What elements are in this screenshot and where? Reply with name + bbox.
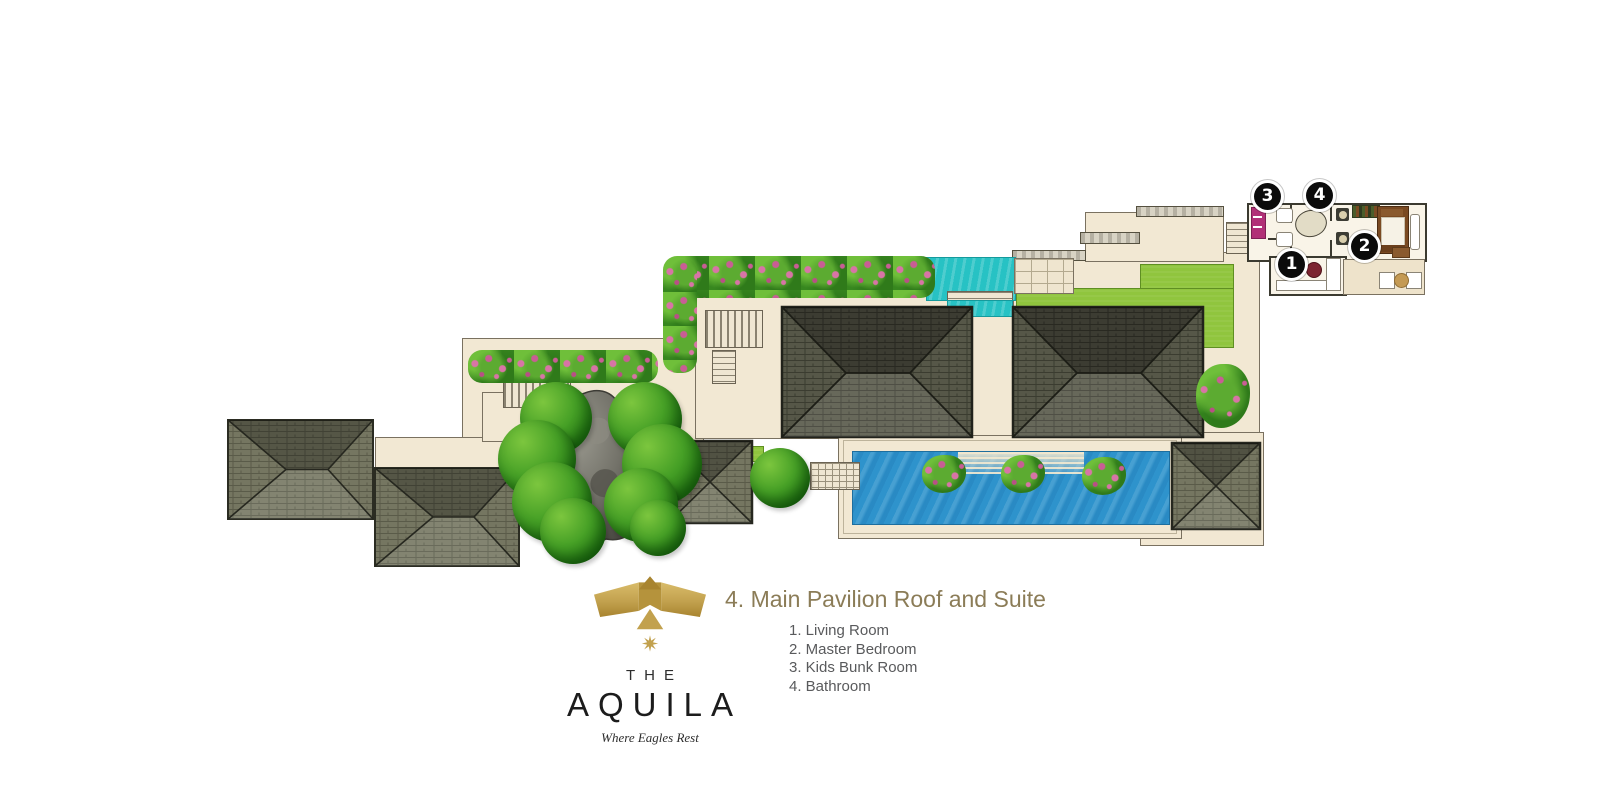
logo-name-text: AQUILA <box>558 686 742 724</box>
logo-the-text: THE <box>558 667 742 684</box>
lounge-chair <box>1379 272 1395 289</box>
round-table <box>1306 262 1322 278</box>
bunk-bed <box>1251 207 1266 239</box>
suite-wall <box>1330 205 1332 221</box>
bench <box>1410 214 1420 250</box>
marker-kids-bunk-room: 3 <box>1254 183 1281 210</box>
aquila-eagle-logo-icon <box>594 576 706 654</box>
legend-item-bathroom: 4. Bathroom <box>789 678 917 697</box>
tree <box>630 500 686 556</box>
aquila-brand-block: THE AQUILA Where Eagles Rest <box>558 576 742 746</box>
mid-flower-border <box>468 350 658 383</box>
marker-master-bedroom: 2 <box>1351 233 1378 260</box>
room-legend: 1. Living Room 2. Master Bedroom 3. Kids… <box>789 622 917 697</box>
logo-tagline: Where Eagles Rest <box>558 730 742 746</box>
suite-wall <box>1330 240 1332 256</box>
page-title: 4. Main Pavilion Roof and Suite <box>725 586 1046 613</box>
upper-steps <box>712 350 736 384</box>
toilet <box>1276 232 1293 247</box>
stone-wall-cap <box>1080 232 1140 244</box>
legend-item-master-bedroom: 2. Master Bedroom <box>789 641 917 660</box>
paver-deck <box>1014 258 1074 294</box>
marker-bathroom: 4 <box>1306 182 1333 209</box>
upper-pergola-slats <box>705 310 763 348</box>
pool-side-steps <box>810 462 860 490</box>
wardrobe <box>1352 205 1380 218</box>
deck-table <box>1394 273 1409 288</box>
round-tree <box>750 448 810 508</box>
marker-living-room: 1 <box>1278 251 1305 278</box>
main-lawn <box>1016 288 1234 348</box>
hip-roof-2 <box>375 468 519 566</box>
stone-wall-cap <box>1136 206 1224 217</box>
hip-roof-1 <box>228 420 373 519</box>
legend-item-kids-bunk-room: 3. Kids Bunk Room <box>789 659 917 678</box>
toilet <box>1276 208 1293 223</box>
sink <box>1336 232 1349 245</box>
side-table <box>1392 247 1410 258</box>
sofa <box>1326 258 1341 291</box>
sink <box>1336 208 1349 221</box>
villa-roof-plan-page: 1 2 3 4 THE AQUILA Where Eagles Rest 4. … <box>0 0 1600 800</box>
upper-flower-border <box>663 256 935 298</box>
plunge-pool-lower <box>947 300 1013 317</box>
tree <box>540 498 606 564</box>
upper-flower-border-leg <box>663 258 697 373</box>
legend-item-living-room: 1. Living Room <box>789 622 917 641</box>
